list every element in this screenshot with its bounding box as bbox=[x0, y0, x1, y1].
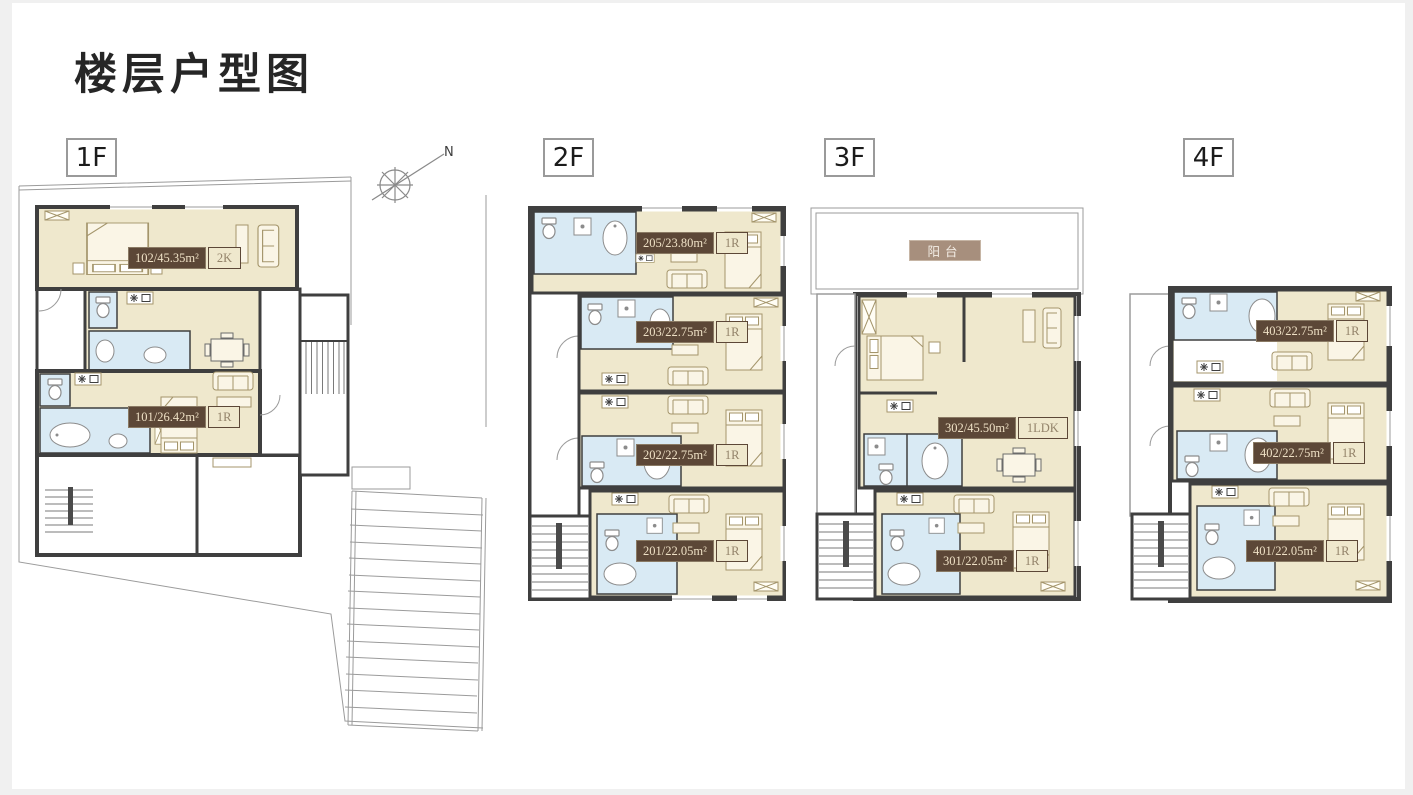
unit-label: 101/26.42m² bbox=[128, 406, 206, 428]
unit-tag-402: 402/22.75m² 1R bbox=[1253, 442, 1365, 464]
external-staircase bbox=[345, 467, 486, 731]
unit-label: 403/22.75m² bbox=[1256, 320, 1334, 342]
room-302 bbox=[859, 296, 1075, 488]
floor-badge-2f: 2F bbox=[543, 138, 594, 177]
unit-type: 2K bbox=[208, 247, 241, 269]
unit-label: 205/23.80m² bbox=[636, 232, 714, 254]
unit-tag-302: 302/45.50m² 1LDK bbox=[938, 417, 1068, 439]
balcony-tag: 阳台 bbox=[909, 240, 981, 261]
compass-north-label: N bbox=[444, 145, 454, 160]
frame-bottom bbox=[0, 789, 1413, 795]
unit-type: 1R bbox=[716, 232, 749, 254]
unit-tag-301: 301/22.05m² 1R bbox=[936, 550, 1048, 572]
unit-tag-102: 102/45.35m² 2K bbox=[128, 247, 241, 269]
room-mid-kitchen bbox=[85, 289, 260, 371]
unit-tag-401: 401/22.05m² 1R bbox=[1246, 540, 1358, 562]
unit-type: 1R bbox=[208, 406, 241, 428]
unit-type: 1R bbox=[716, 444, 749, 466]
unit-type: 1R bbox=[716, 540, 749, 562]
frame-right bbox=[1405, 0, 1413, 795]
unit-type: 1R bbox=[1016, 550, 1049, 572]
floor-badge-1f: 1F bbox=[66, 138, 117, 177]
frame-left bbox=[0, 0, 12, 795]
unit-type: 1R bbox=[1336, 320, 1369, 342]
unit-label: 102/45.35m² bbox=[128, 247, 206, 269]
floor-plan-page: 楼层户型图 1F 2F 3F 4F bbox=[0, 0, 1413, 795]
room-402 bbox=[1172, 386, 1388, 481]
page-title: 楼层户型图 bbox=[74, 40, 314, 102]
unit-label: 203/22.75m² bbox=[636, 321, 714, 343]
unit-tag-403: 403/22.75m² 1R bbox=[1256, 320, 1368, 342]
room-202 bbox=[579, 393, 784, 488]
unit-type: 1R bbox=[1333, 442, 1366, 464]
unit-label: 301/22.05m² bbox=[936, 550, 1014, 572]
unit-tag-205: 205/23.80m² 1R bbox=[636, 232, 748, 254]
floor-plan-1f bbox=[15, 165, 495, 745]
unit-type: 1R bbox=[716, 321, 749, 343]
unit-tag-202: 202/22.75m² 1R bbox=[636, 444, 748, 466]
unit-type: 1R bbox=[1326, 540, 1359, 562]
unit-label: 401/22.05m² bbox=[1246, 540, 1324, 562]
floor-badge-3f: 3F bbox=[824, 138, 875, 177]
unit-label: 201/22.05m² bbox=[636, 540, 714, 562]
unit-label: 402/22.75m² bbox=[1253, 442, 1331, 464]
unit-tag-203: 203/22.75m² 1R bbox=[636, 321, 748, 343]
unit-tag-101: 101/26.42m² 1R bbox=[128, 406, 240, 428]
floor-badge-4f: 4F bbox=[1183, 138, 1234, 177]
unit-type: 1LDK bbox=[1018, 417, 1068, 439]
unit-tag-201: 201/22.05m² 1R bbox=[636, 540, 748, 562]
room-203 bbox=[579, 295, 784, 391]
frame-top bbox=[0, 0, 1413, 3]
room-301 bbox=[875, 491, 1075, 597]
unit-label: 302/45.50m² bbox=[938, 417, 1016, 439]
unit-label: 202/22.75m² bbox=[636, 444, 714, 466]
